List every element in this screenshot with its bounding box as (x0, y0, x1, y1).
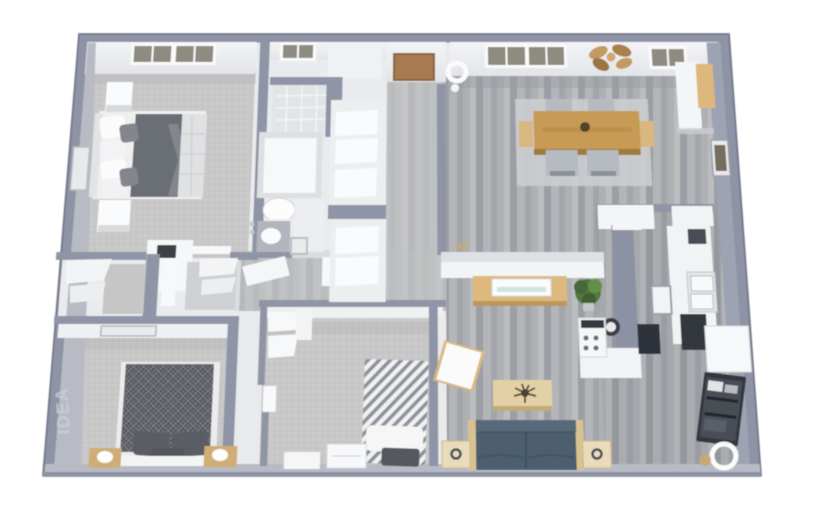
svg-text:IDEA: IDEA (52, 387, 74, 435)
